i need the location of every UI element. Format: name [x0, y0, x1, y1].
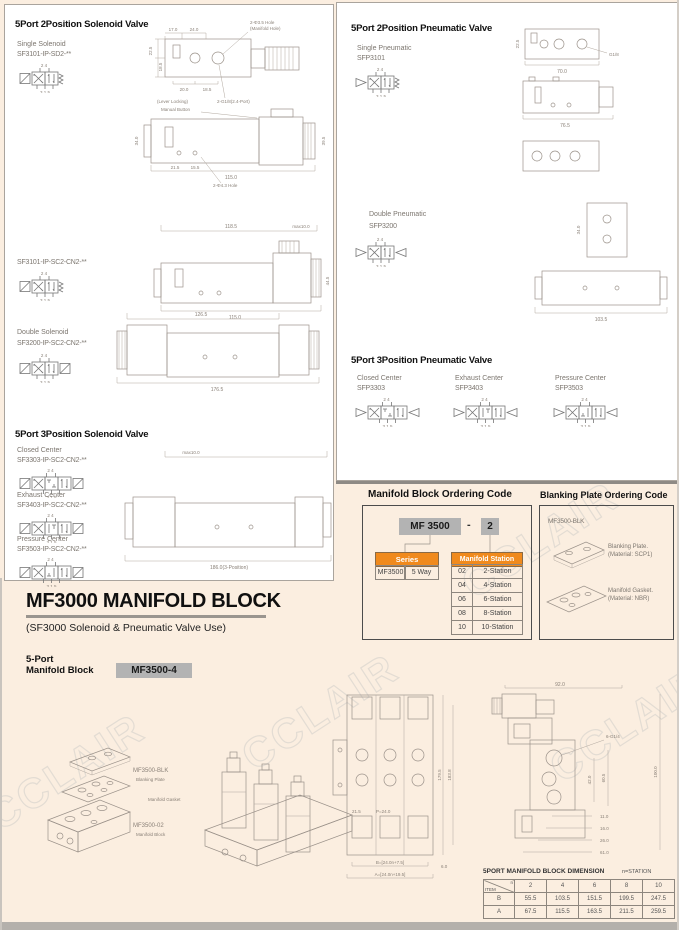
pneumatic-valve-panel: 5Port 2Position Pneumatic Valve Single P… — [336, 2, 678, 481]
station-code-cell: 10 — [451, 620, 473, 635]
station-row: 088-Station — [451, 607, 523, 621]
port-label-line1: 5-Port — [26, 654, 53, 665]
dimension-table-note: n=STATION — [622, 869, 651, 875]
svg-text:15.5: 15.5 — [191, 165, 200, 170]
svg-text:42.0: 42.0 — [587, 775, 592, 784]
dimension-value-cell: 55.5 — [515, 893, 547, 906]
station-code-cell: 06 — [451, 592, 473, 607]
blanking-plate-label-1: Blanking Plate. — [608, 544, 648, 550]
svg-text:126.5: 126.5 — [195, 312, 208, 318]
station-code-cell: 02 — [451, 564, 473, 579]
station-count-header: 6 — [579, 880, 611, 893]
svg-text:61.0: 61.0 — [600, 850, 609, 855]
dimension-item-cell: B — [484, 893, 515, 906]
svg-text:18.5: 18.5 — [203, 87, 212, 92]
station-label-cell: 10-Station — [472, 620, 523, 635]
blanking-plate-label-2: (Material: SCP1) — [608, 552, 652, 558]
svg-text:115.0: 115.0 — [225, 175, 237, 181]
station-count-header: 10 — [643, 880, 675, 893]
series-way-cell: 5 Way — [404, 565, 439, 580]
station-row: 044-Station — [451, 579, 523, 593]
station-code-cell: 04 — [451, 578, 473, 593]
svg-text:176.5: 176.5 — [211, 387, 224, 393]
svg-text:18.5: 18.5 — [158, 62, 163, 71]
gasket-label-1: Manifold Gasket. — [608, 588, 653, 594]
svg-text:183.8: 183.8 — [447, 769, 452, 781]
station-label-cell: 4-Station — [472, 578, 523, 593]
order-code-station-chip: 2 — [481, 518, 499, 535]
dimension-item-cell: A — [484, 906, 515, 919]
svg-text:Manifold Gasket: Manifold Gasket — [148, 797, 181, 802]
manifold-ordering-title: Manifold Block Ordering Code — [368, 489, 512, 500]
svg-text:3 1 5: 3 1 5 — [46, 584, 57, 587]
dimension-value-cell: 151.5 — [579, 893, 611, 906]
station-row: 1010-Station — [451, 621, 523, 635]
dimension-value-cell: 115.5 — [547, 906, 579, 919]
station-row: 066-Station — [451, 593, 523, 607]
dimension-value-cell: 247.5 — [643, 893, 675, 906]
order-code-dash: - — [467, 519, 471, 531]
svg-text:76.5: 76.5 — [560, 123, 570, 129]
svg-text:max10.0: max10.0 — [292, 224, 310, 229]
svg-text:103.5: 103.5 — [595, 317, 608, 323]
solenoid-technical-drawings: 17.0 24.0 2-Φ3.5 Hole (Manifold Hole) 22… — [5, 5, 333, 580]
station-count-header: 2 — [515, 880, 547, 893]
svg-text:21.5: 21.5 — [352, 809, 361, 814]
svg-text:2-Φ4.3 Hole: 2-Φ4.3 Hole — [213, 183, 238, 188]
svg-text:22.5: 22.5 — [515, 39, 520, 48]
svg-text:34.0: 34.0 — [134, 136, 139, 145]
station-row: 022-Station — [451, 565, 523, 579]
svg-text:P=24.0: P=24.0 — [376, 809, 391, 814]
station-code-cell: 08 — [451, 606, 473, 621]
svg-text:max10.0: max10.0 — [182, 450, 200, 455]
blanking-ordering-title: Blanking Plate Ordering Code — [540, 490, 668, 500]
svg-text:20.0: 20.0 — [180, 87, 189, 92]
svg-text:6.0: 6.0 — [441, 864, 448, 869]
blanking-code: MF3500-BLK — [548, 518, 584, 525]
svg-text:(Manifold Hole): (Manifold Hole) — [250, 26, 281, 31]
svg-text:70.0: 70.0 — [557, 69, 567, 75]
dimension-value-cell: 163.5 — [579, 906, 611, 919]
series-model-cell: MF3500 — [375, 565, 406, 580]
divider — [336, 481, 679, 484]
dimension-value-cell: 199.5 — [611, 893, 643, 906]
svg-text:26.0: 26.0 — [600, 838, 609, 843]
svg-text:6-G1/4: 6-G1/4 — [606, 734, 620, 739]
svg-text:39.5: 39.5 — [321, 136, 326, 145]
station-label-cell: 6-Station — [472, 592, 523, 607]
svg-text:11.0: 11.0 — [600, 814, 609, 819]
svg-text:(Lever Locking): (Lever Locking) — [157, 99, 189, 104]
table-corner-cell: nITEM — [484, 880, 515, 893]
svg-text:22.5: 22.5 — [148, 46, 153, 55]
model-chip: MF3500-4 — [116, 663, 192, 678]
svg-text:186.0(3-Position): 186.0(3-Position) — [210, 565, 248, 571]
dimension-row: B55.5103.5151.5199.5247.5 — [484, 893, 675, 906]
station-count-header: 4 — [547, 880, 579, 893]
svg-text:2-Φ3.5 Hole: 2-Φ3.5 Hole — [250, 20, 275, 25]
blanking-ordering-box: MF3500-BLK Blanking Plate. (Material: SC… — [539, 505, 674, 640]
solenoid-valve-panel: 5Port 2Position Solenoid Valve Single So… — [4, 4, 334, 581]
svg-text:G1/8: G1/8 — [609, 52, 619, 57]
dimension-table-title: 5PORT MANIFOLD BLOCK DIMENSION — [483, 868, 604, 875]
pneumatic-technical-drawings: 70.0 22.5 G1/8 76.5 34.0 103.5 — [337, 3, 677, 480]
manifold-dimension-table: nITEM246810B55.5103.5151.5199.5247.5A67.… — [483, 879, 675, 919]
order-code-series-chip: MF 3500 — [399, 518, 461, 535]
page-subtitle: (SF3000 Solenoid & Pneumatic Valve Use) — [26, 622, 226, 634]
dimension-value-cell: 211.5 — [611, 906, 643, 919]
dimension-value-cell: 103.5 — [547, 893, 579, 906]
svg-text:MF3500-BLK: MF3500-BLK — [133, 768, 168, 774]
svg-text:115.0: 115.0 — [229, 315, 241, 321]
title-underline — [26, 615, 266, 618]
svg-text:Manual Button: Manual Button — [161, 107, 191, 112]
dimension-value-cell: 259.5 — [643, 906, 675, 919]
svg-text:60.5: 60.5 — [601, 773, 606, 782]
svg-text:Blanking Plate: Blanking Plate — [136, 777, 165, 782]
dimension-value-cell: 67.5 — [515, 906, 547, 919]
catalog-page: { "watermark": {"text": "CCLAIR"}, "left… — [0, 0, 679, 930]
svg-text:Manifold Block: Manifold Block — [136, 832, 166, 837]
svg-text:17.0: 17.0 — [169, 27, 178, 32]
svg-text:24.0: 24.0 — [190, 27, 199, 32]
svg-text:100.0: 100.0 — [653, 766, 658, 778]
page-bottom-edge — [0, 922, 679, 930]
station-count-header: 8 — [611, 880, 643, 893]
port-label-line2: Manifold Block — [26, 665, 94, 676]
page-title: MF3000 MANIFOLD BLOCK — [26, 590, 281, 613]
station-table: 022-Station044-Station066-Station088-Sta… — [451, 565, 523, 635]
svg-text:21.5: 21.5 — [171, 165, 180, 170]
svg-text:34.0: 34.0 — [576, 225, 581, 234]
station-label-cell: 8-Station — [472, 606, 523, 621]
blanking-plate-drawing — [542, 534, 614, 634]
svg-text:MF3500-02: MF3500-02 — [133, 823, 164, 829]
svg-text:B=[24.0n+7.5]: B=[24.0n+7.5] — [376, 860, 404, 865]
svg-text:A=[24.0n+19.5]: A=[24.0n+19.5] — [375, 872, 406, 877]
svg-text:92.0: 92.0 — [555, 682, 565, 688]
dimension-table: nITEM246810B55.5103.5151.5199.5247.5A67.… — [483, 879, 675, 919]
svg-text:118.5: 118.5 — [225, 224, 237, 230]
svg-text:2-G1/8(2.4-Port): 2-G1/8(2.4-Port) — [217, 99, 250, 104]
gasket-label-2: (Material: NBR) — [608, 596, 649, 602]
page-left-edge — [0, 578, 2, 930]
svg-text:16.0: 16.0 — [600, 826, 609, 831]
dimension-row: A67.5115.5163.5211.5259.5 — [484, 906, 675, 919]
svg-text:179.5: 179.5 — [437, 769, 442, 781]
svg-text:44.5: 44.5 — [325, 276, 330, 285]
station-label-cell: 2-Station — [472, 564, 523, 579]
manifold-ordering-box: MF 3500 - 2 Series MF3500 5 Way Manifold… — [362, 505, 532, 640]
